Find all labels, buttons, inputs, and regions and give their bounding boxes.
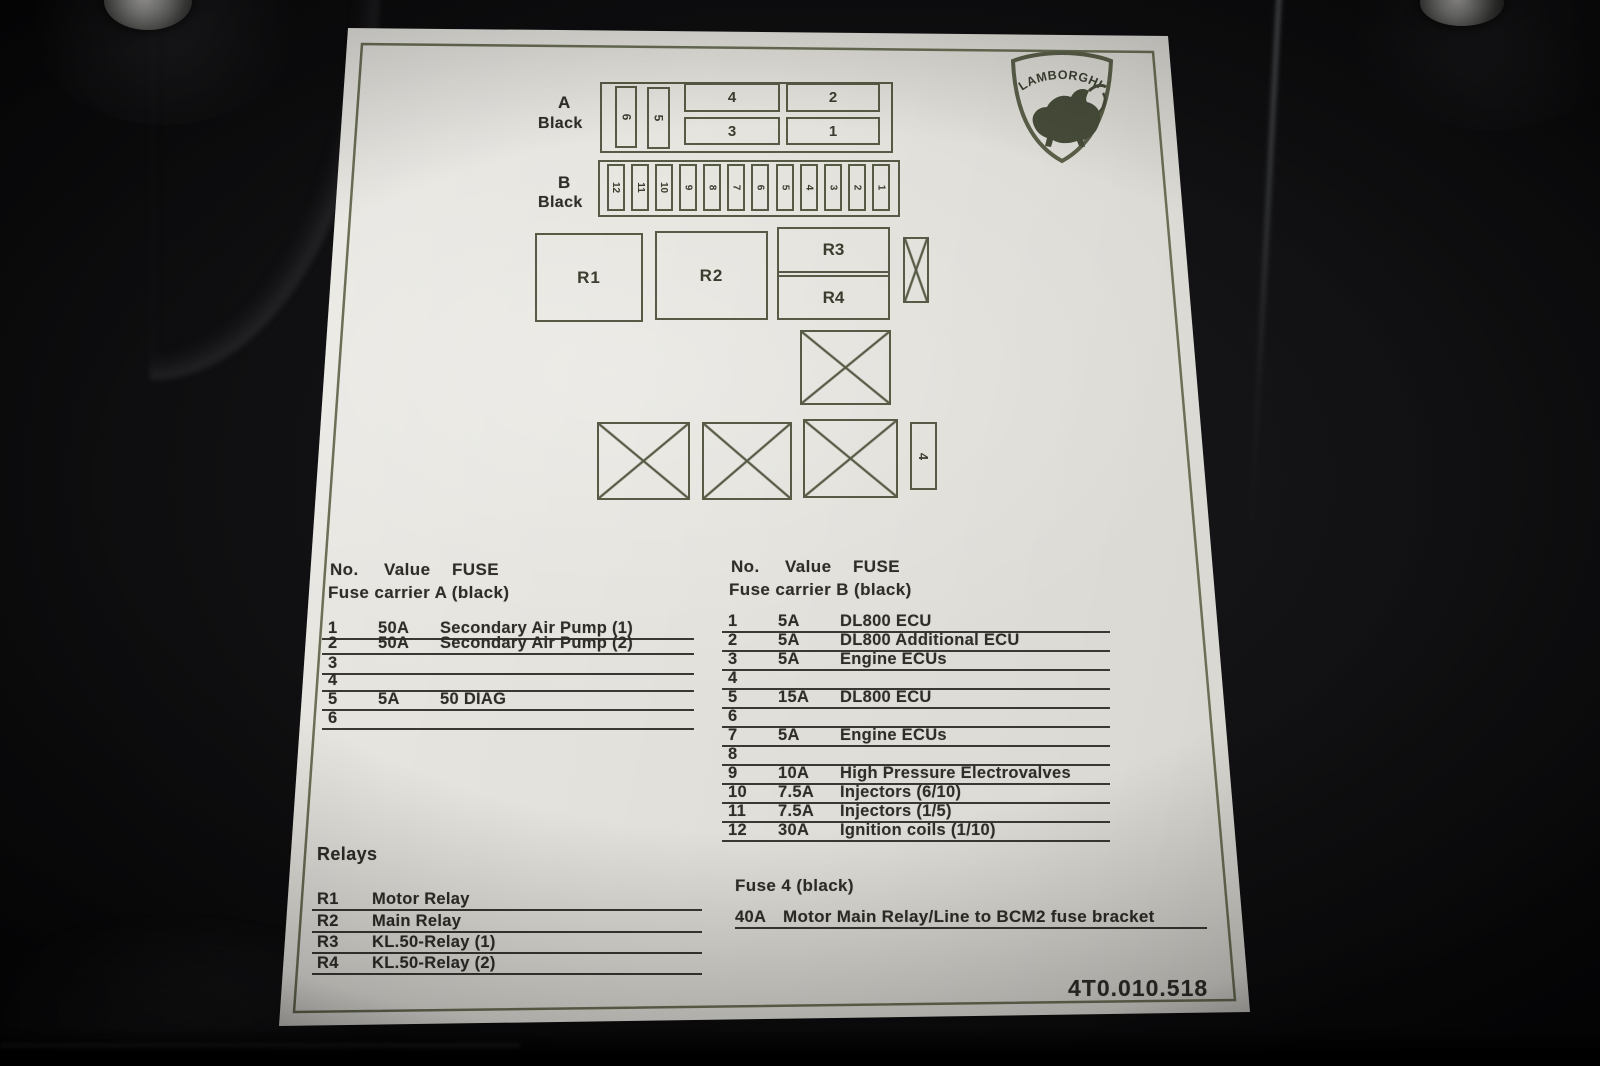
relay-row: R4KL.50-Relay (2) — [312, 953, 702, 975]
table-row: 55A50 DIAG — [322, 690, 694, 711]
table-row: 107.5AInjectors (6/10) — [722, 783, 1110, 804]
fuse-slot-b1: 1 — [872, 164, 890, 211]
relay-box-r4: R4 — [779, 275, 888, 318]
fuse-slot-a5: 5 — [647, 87, 670, 149]
relay-row: R2Main Relay — [312, 911, 702, 933]
fuse-slot-b3: 3 — [824, 164, 842, 211]
table-row: 6 — [722, 707, 1110, 728]
table-row: 515ADL800 ECU — [722, 688, 1110, 709]
blanked-slot-row-1 — [597, 422, 690, 500]
table-row: 250ASecondary Air Pump (2) — [322, 634, 694, 655]
table-row: 4 — [722, 669, 1110, 690]
fuse-slot-b10: 10 — [655, 164, 673, 211]
fuse-slot-a2: 2 — [786, 83, 880, 112]
lamborghini-logo: LAMBORGHINI — [1003, 47, 1121, 167]
fuse-slot-b12: 12 — [607, 164, 625, 211]
fuse-slot-b9: 9 — [679, 164, 697, 211]
fuse4-section-title: Fuse 4 (black) — [735, 876, 854, 896]
table-row: 1230AIgnition coils (1/10) — [722, 821, 1110, 842]
table-a-subheader: Fuse carrier A (black) — [328, 583, 509, 603]
carrier-a-label-letter: A — [558, 93, 571, 113]
cover-bottom-edge — [0, 1028, 1600, 1066]
table-row: 117.5AInjectors (1/5) — [722, 802, 1110, 823]
carrier-b-label-color: Black — [538, 194, 583, 212]
table-row: 910AHigh Pressure Electrovalves — [722, 764, 1110, 785]
fuse-slot-4: 4 — [910, 422, 937, 490]
relays-section-title: Relays — [317, 844, 377, 865]
carrier-a-label-color: Black — [538, 115, 583, 133]
fuse-slot-b4: 4 — [800, 164, 818, 211]
relay-box-r3: R3 — [779, 229, 888, 273]
fuse-slot-a4: 4 — [684, 83, 780, 112]
fuse-slot-b6: 6 — [751, 164, 769, 211]
blanked-slot-narrow — [903, 237, 929, 303]
relay-box-r2: R2 — [655, 231, 768, 320]
part-number: 4T0.010.518 — [1068, 975, 1208, 1002]
cover-bottom-edge-highlight — [0, 1044, 520, 1047]
fuse-slot-b7: 7 — [727, 164, 745, 211]
table-row: 8 — [722, 745, 1110, 766]
table-row: 15ADL800 ECU — [722, 612, 1110, 633]
blanked-slot-row-2 — [702, 422, 792, 500]
relay-row: R3KL.50-Relay (1) — [312, 932, 702, 954]
table-row: 35AEngine ECUs — [722, 650, 1110, 671]
fuse-slot-b2: 2 — [848, 164, 866, 211]
fuse-slot-b11: 11 — [631, 164, 649, 211]
table-row: 25ADL800 Additional ECU — [722, 631, 1110, 652]
table-b-subheader: Fuse carrier B (black) — [729, 580, 912, 600]
fuse-slot-a6: 6 — [615, 86, 637, 148]
fuse-slot-b5: 5 — [776, 164, 794, 211]
table-row: 6 — [322, 709, 694, 730]
blanked-slot-single — [800, 330, 891, 405]
blanked-slot-row-3 — [803, 419, 898, 498]
fuse-slot-a3: 3 — [684, 117, 780, 145]
table-row: 75AEngine ECUs — [722, 726, 1110, 747]
fuse-slot-a1: 1 — [786, 117, 880, 145]
relay-box-r1: R1 — [535, 233, 643, 322]
photo-of-fuse-box-cover: LAMBORGHINI A Black 6 5 4 2 3 1 B Black … — [0, 0, 1600, 1066]
fuse4-row: 40A Motor Main Relay/Line to BCM2 fuse b… — [735, 908, 1207, 929]
relay-row: R1Motor Relay — [312, 889, 702, 911]
relay-box-r3-r4: R3 R4 — [777, 227, 890, 320]
table-row: 4 — [322, 671, 694, 692]
carrier-b-label-letter: B — [558, 173, 571, 193]
fuse-slot-b8: 8 — [703, 164, 721, 211]
